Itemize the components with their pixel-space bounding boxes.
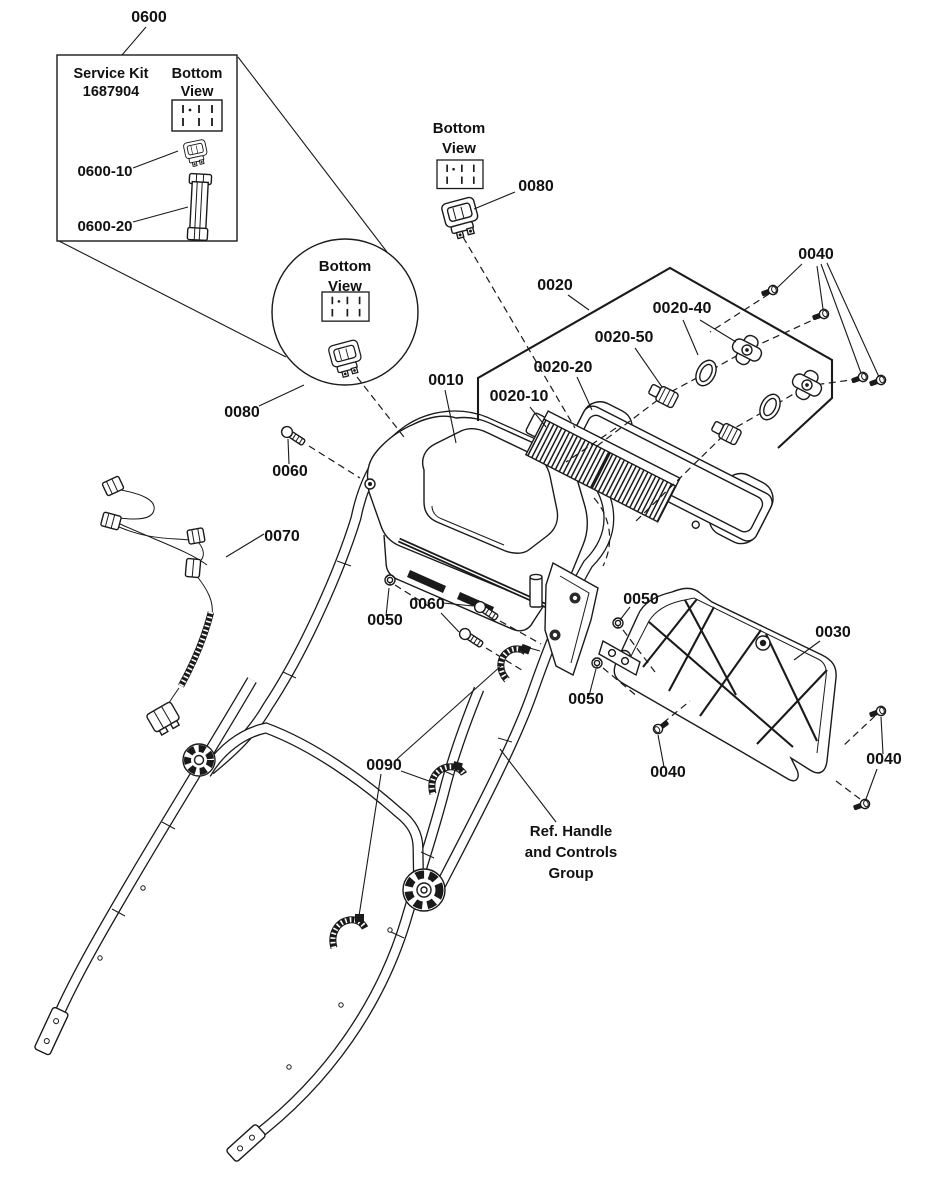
screw-part-0040 xyxy=(811,308,830,322)
screw-part-0040 xyxy=(868,705,887,719)
right-tube-end-plate xyxy=(226,1124,266,1163)
callout-0600[interactable]: 0600 xyxy=(131,9,167,26)
callout-0040-bottom-right[interactable]: 0040 xyxy=(866,751,902,768)
parts-diagram-page: 0600 Service Kit 1687904 Bottom View 060… xyxy=(0,0,951,1200)
service-kit-bottom-view-line2: View xyxy=(181,84,215,100)
reference-note-line1: Ref. Handle xyxy=(530,823,613,840)
exploded-parts-diagram: 0600 Service Kit 1687904 Bottom View 060… xyxy=(0,0,951,1200)
callout-0070[interactable]: 0070 xyxy=(264,528,300,545)
wiring-harness-part-0070 xyxy=(100,476,212,737)
screw-part-0040 xyxy=(868,374,887,388)
callout-0060-mid[interactable]: 0060 xyxy=(409,596,445,613)
handle-star-knob-right xyxy=(403,869,445,911)
reference-note-line2: and Controls xyxy=(525,844,618,861)
callout-0020[interactable]: 0020 xyxy=(537,277,573,294)
nut-part-0050 xyxy=(385,575,395,585)
callout-0030[interactable]: 0030 xyxy=(815,624,851,641)
callout-0050-lower[interactable]: 0050 xyxy=(568,691,604,708)
callout-0050-left[interactable]: 0050 xyxy=(367,612,403,629)
callout-0040-top[interactable]: 0040 xyxy=(798,246,834,263)
callout-0080-top[interactable]: 0080 xyxy=(518,178,554,195)
o-ring xyxy=(692,357,720,389)
bottom-view-icon xyxy=(437,160,483,189)
service-kit-title: Service Kit xyxy=(74,66,149,82)
knob-part-0020-40 xyxy=(727,330,767,370)
knob-part-0020-40 xyxy=(787,365,827,405)
callout-0020-40[interactable]: 0020-40 xyxy=(653,300,712,317)
callout-0040-bottom-left[interactable]: 0040 xyxy=(650,764,686,781)
rear-panel-part-0030 xyxy=(599,588,836,780)
callout-0020-10[interactable]: 0020-10 xyxy=(490,388,549,405)
callout-0050-mid[interactable]: 0050 xyxy=(623,591,659,608)
callout-0600-10[interactable]: 0600-10 xyxy=(77,163,132,180)
cable-clip-part-0090 xyxy=(333,914,365,948)
callout-0080-circle[interactable]: 0080 xyxy=(224,404,260,421)
screw-part-0040 xyxy=(852,798,871,812)
bottom-view-icon xyxy=(172,100,222,131)
bottom-view-icon xyxy=(322,292,369,321)
callout-0020-20[interactable]: 0020-20 xyxy=(534,359,593,376)
screw-part-0040 xyxy=(652,718,671,735)
screw-part-0040 xyxy=(760,284,779,298)
screw-part-0060 xyxy=(458,627,485,650)
top-bottom-view-line2: View xyxy=(442,140,476,157)
callout-0060-upper[interactable]: 0060 xyxy=(272,463,308,480)
service-kit-box xyxy=(57,55,237,241)
switch-part-0080 xyxy=(441,196,482,240)
bulb-part-0020-50 xyxy=(647,382,679,409)
nut-part-0050 xyxy=(592,658,602,668)
nut-part-0050 xyxy=(613,618,623,628)
screw-part-0060 xyxy=(473,600,500,623)
screw-part-0040 xyxy=(850,371,869,385)
service-kit-part-number: 1687904 xyxy=(83,84,139,100)
callout-0600-20[interactable]: 0600-20 xyxy=(77,218,132,235)
circle-bottom-view-line1: Bottom xyxy=(319,258,372,275)
o-ring xyxy=(756,391,784,423)
callout-0020-50[interactable]: 0020-50 xyxy=(595,329,654,346)
tube-joint-ticks xyxy=(112,561,540,938)
service-kit-bottom-view-line1: Bottom xyxy=(172,66,223,82)
cable-clip-part-0090 xyxy=(501,644,531,680)
top-bottom-view xyxy=(437,160,483,241)
circle-bottom-view-line2: View xyxy=(328,278,362,295)
left-tube-end-plate xyxy=(34,1007,69,1056)
top-bottom-view-line1: Bottom xyxy=(433,120,486,137)
screw-part-0060 xyxy=(280,425,307,448)
callout-0090[interactable]: 0090 xyxy=(366,757,402,774)
reference-note-line3: Group xyxy=(549,865,594,882)
handle-star-knob-left xyxy=(183,744,215,776)
bulb-part-0020-50 xyxy=(710,419,742,446)
callout-0010[interactable]: 0010 xyxy=(428,372,464,389)
